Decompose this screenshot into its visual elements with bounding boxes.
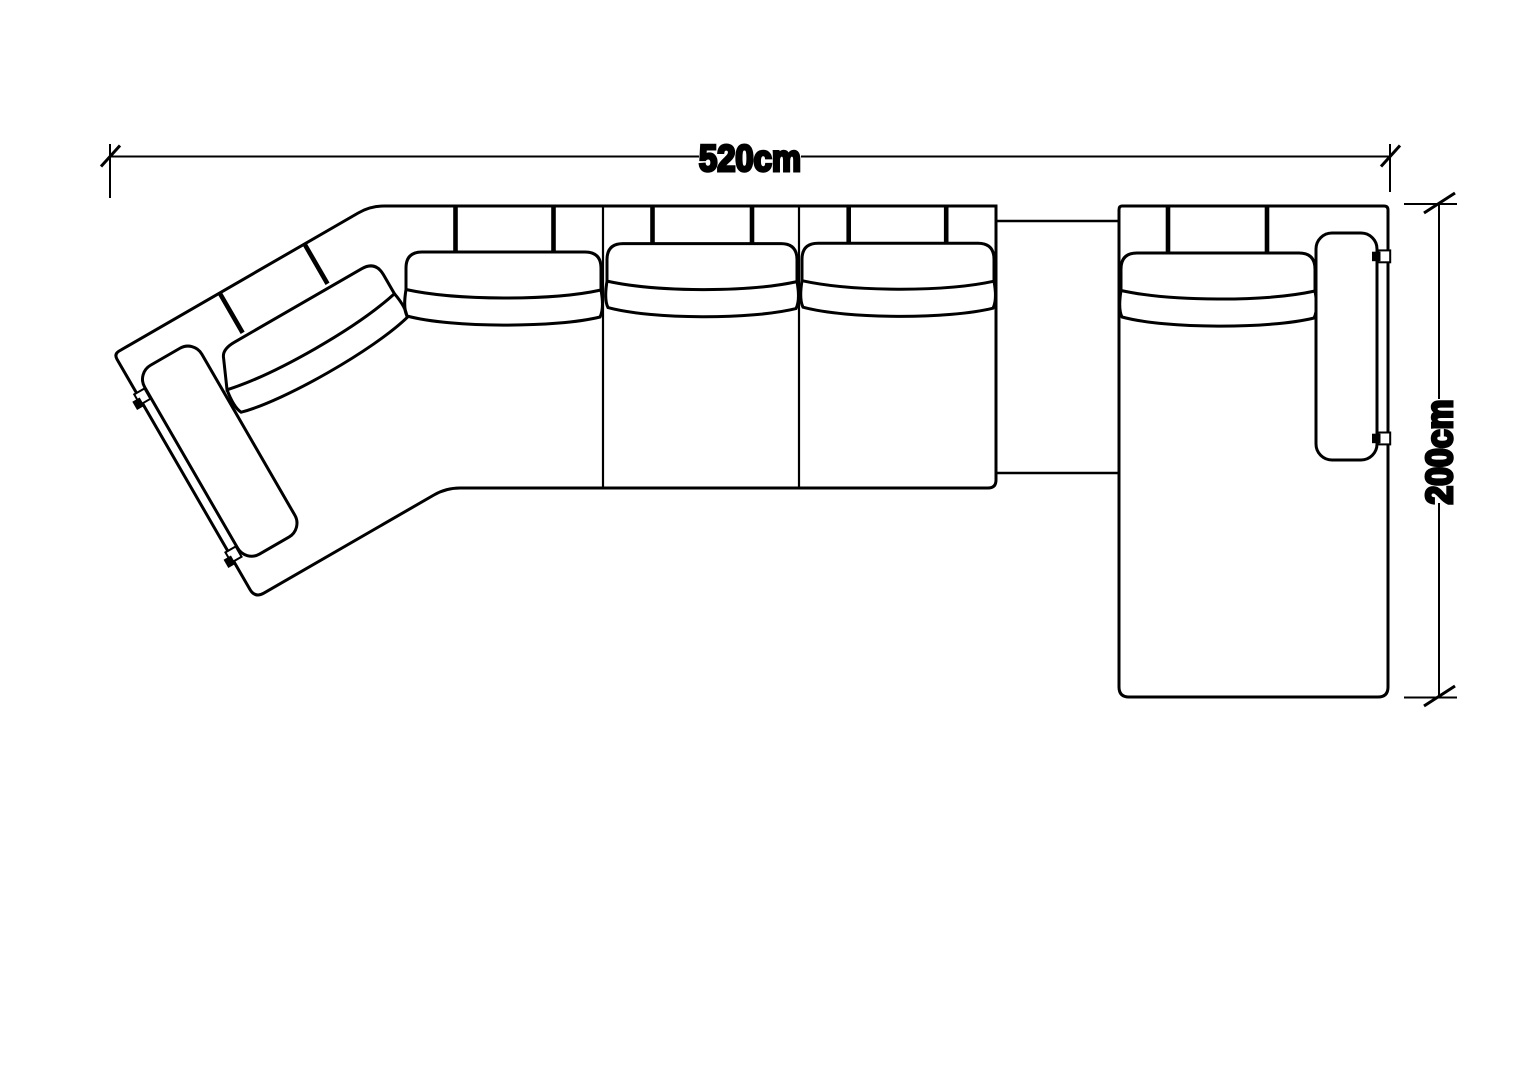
svg-text:520cm: 520cm [699, 138, 801, 179]
svg-text:200cm: 200cm [1419, 400, 1460, 505]
